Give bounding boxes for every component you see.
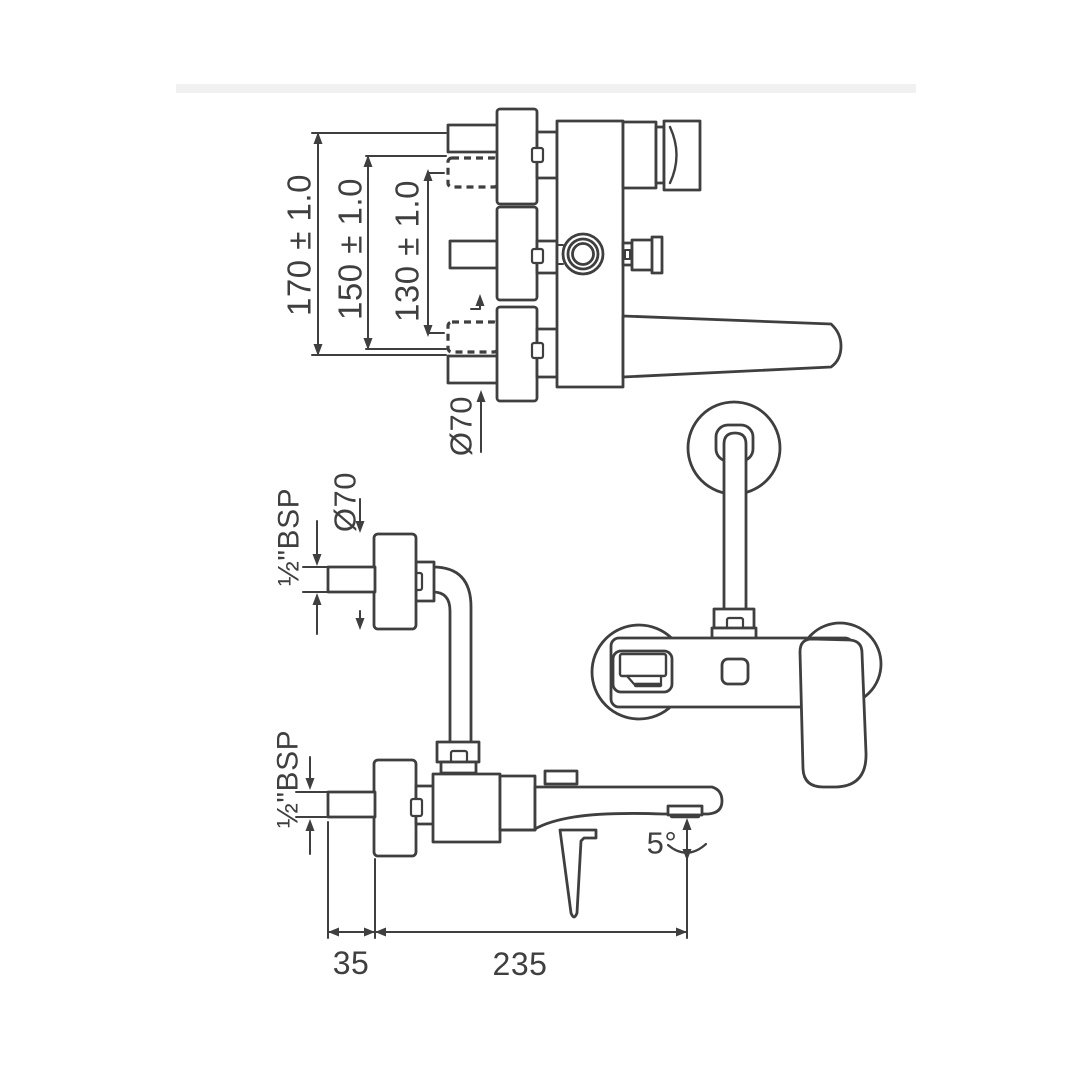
technical-drawing-svg: 170 ± 1.0 150 ± 1.0 130 ± 1.0 Ø70 Ø70 ½"… bbox=[0, 0, 1080, 1080]
spout-plan bbox=[623, 316, 841, 377]
dim-35-label: 35 bbox=[333, 945, 370, 981]
inlet-pipe-top bbox=[448, 125, 498, 152]
mixer-body-side bbox=[433, 774, 500, 842]
inlet-pipe-bottom bbox=[448, 356, 498, 383]
aerator bbox=[668, 806, 702, 815]
elbow-pipe-inner bbox=[433, 592, 450, 742]
side-escutcheon bbox=[374, 760, 416, 856]
dim-dia70-label-union: Ø70 bbox=[328, 472, 363, 532]
outlet-pipe-middle bbox=[450, 241, 497, 268]
diverter-button-front bbox=[722, 659, 748, 684]
dim-170-label: 170 ± 1.0 bbox=[281, 174, 318, 316]
spout-top-tab bbox=[545, 771, 577, 784]
dim-5deg-label: 5° bbox=[647, 826, 678, 861]
lever-handle-front bbox=[800, 639, 866, 787]
dim-bsp-label-side: ½"BSP bbox=[272, 730, 305, 828]
technical-drawing-page: 170 ± 1.0 150 ± 1.0 130 ± 1.0 Ø70 Ø70 ½"… bbox=[0, 0, 1080, 1080]
lever-handle-plan bbox=[623, 121, 700, 190]
spout-base-block bbox=[500, 776, 535, 830]
front-view bbox=[592, 402, 881, 787]
union-inlet-pipe bbox=[328, 567, 375, 592]
hidden-inlet-pipe-top bbox=[448, 158, 498, 187]
spout-mouth-front bbox=[613, 651, 672, 692]
dim-dia70-label-top: Ø70 bbox=[444, 396, 479, 456]
dim-150-label: 150 ± 1.0 bbox=[332, 178, 369, 320]
side-view: ½"BSP 35 235 5° bbox=[272, 730, 723, 982]
dim-bsp-label-union: ½"BSP bbox=[273, 488, 306, 586]
dim-235-label: 235 bbox=[493, 946, 548, 982]
lever-handle-side bbox=[560, 830, 596, 917]
union-escutcheon bbox=[374, 534, 416, 629]
dim-130-label: 130 ± 1.0 bbox=[389, 180, 426, 322]
riser-pipe-fill bbox=[724, 438, 746, 609]
hidden-inlet-pipe-bottom bbox=[448, 322, 498, 352]
top-view: 170 ± 1.0 150 ± 1.0 130 ± 1.0 Ø70 bbox=[281, 109, 842, 456]
side-inlet-pipe bbox=[328, 792, 375, 817]
diverter-knob-plan bbox=[623, 237, 662, 273]
wall-union-view: Ø70 ½"BSP bbox=[273, 472, 480, 773]
header-divider-band bbox=[176, 84, 916, 93]
